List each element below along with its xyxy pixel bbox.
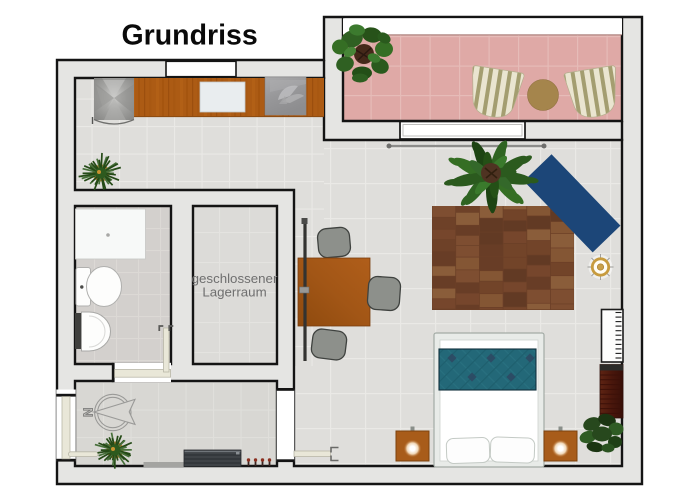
svg-text:Grundriss: Grundriss (122, 20, 258, 52)
svg-text:N: N (80, 408, 95, 417)
svg-text:Lagerraum: Lagerraum (202, 285, 266, 300)
